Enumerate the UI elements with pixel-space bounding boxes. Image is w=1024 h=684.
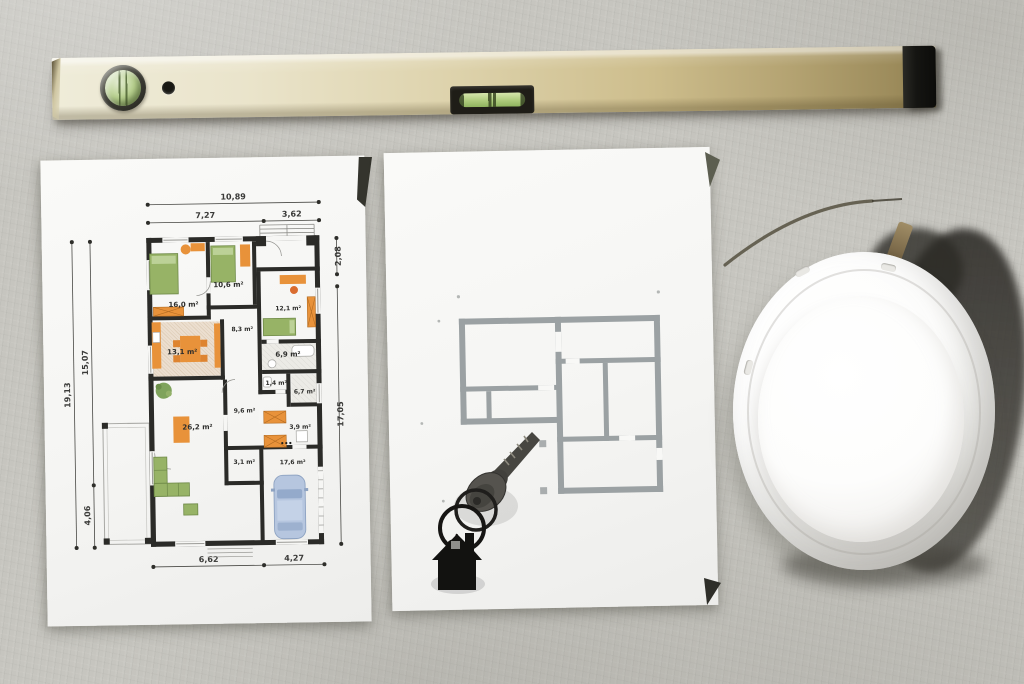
detailed-floor-plan-sheet: 10,89 7,27 3,62 2,08 17,05 19,13 15,07 4… [40,155,371,626]
dim-left-upper: 15,07 [81,350,90,376]
dim-right-upper: 2,08 [334,246,343,266]
room-label: 8,3 m² [231,326,253,333]
level-left-end [52,58,62,120]
level-round-vial-glass [105,70,141,106]
dim-top-left: 7,27 [195,211,215,220]
dim-right-main: 17,05 [336,401,345,427]
outline-door-gaps [537,330,662,462]
flat-lay-photo: 10,89 7,27 3,62 2,08 17,05 19,13 15,07 4… [0,0,1024,684]
bedroom2-furniture [211,244,251,282]
room-label: 10,6 m² [213,280,243,289]
room-label: 16,0 m² [168,300,198,309]
keys-with-keychain [424,424,544,609]
room-label: 17,6 m² [280,459,306,466]
level-horizontal-vial [450,85,534,114]
room-label: 13,1 m² [167,347,197,356]
level-horizontal-vial-glass [459,92,525,107]
paper-corner-shadow [357,157,372,207]
hat-dome [758,296,964,542]
room-label: 6,9 m² [275,349,300,358]
entry-steps [260,224,315,236]
level-hang-hole [162,81,175,94]
dim-left-lower: 4,06 [83,505,92,525]
detailed-floor-plan: 10,89 7,27 3,62 2,08 17,05 19,13 15,07 4… [40,155,371,626]
keychain-window [451,541,460,549]
room-label: 1,4 m² [265,380,287,387]
garage-car [271,475,309,539]
living-room-furniture [153,382,198,515]
room-label: 26,2 m² [182,422,212,431]
level-end-cap [902,46,936,108]
room-label: 12,1 m² [275,305,301,312]
level-round-vial [100,65,147,112]
spirit-level [52,46,937,120]
dim-top-right: 3,62 [282,209,302,218]
room-label: 9,6 m² [234,407,256,414]
dim-bottom-right: 4,27 [284,554,304,563]
dim-left-total: 19,13 [63,382,72,408]
house-keychain [432,533,482,590]
room-label: 6,7 m² [294,388,316,395]
terrace [102,422,151,544]
hard-hat [733,252,995,570]
room-label: 3,1 m² [233,459,255,466]
room-label: 3,9 m² [289,424,311,431]
dim-top-total: 10,89 [220,192,246,201]
dim-bottom-left: 6,62 [199,555,219,564]
